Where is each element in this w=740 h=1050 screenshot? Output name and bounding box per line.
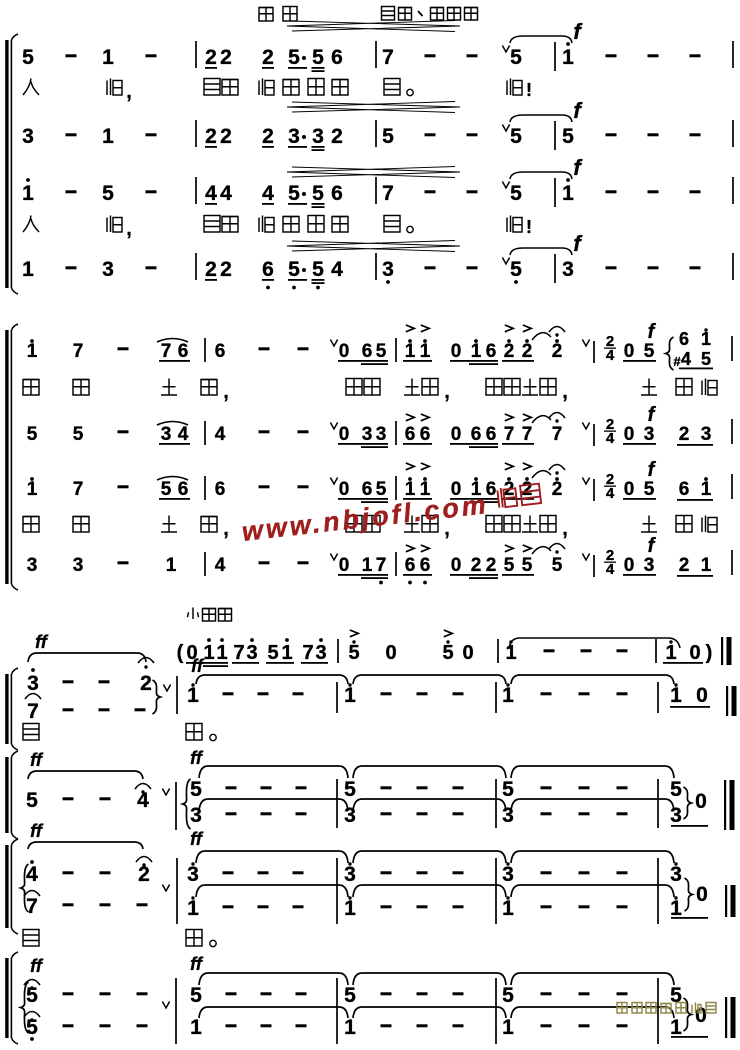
svg-text:): ) [706,642,713,664]
svg-text:1: 1 [670,684,682,707]
svg-text:3: 3 [288,125,300,148]
svg-text:1: 1 [22,258,34,281]
svg-text:2: 2 [140,672,152,695]
svg-text:1: 1 [420,341,431,362]
svg-text:7: 7 [73,479,84,500]
svg-text:5: 5 [510,182,522,205]
svg-text:4: 4 [606,347,615,364]
svg-text:2: 2 [220,258,232,281]
svg-text:6: 6 [486,424,497,445]
svg-text:1: 1 [216,642,227,664]
svg-text:4: 4 [26,863,38,886]
svg-text:2: 2 [205,258,217,281]
svg-text:1: 1 [505,642,516,664]
svg-text:0: 0 [624,424,635,445]
svg-text:0: 0 [624,555,635,576]
svg-text:3: 3 [376,424,387,445]
svg-text:4: 4 [178,424,189,445]
svg-text:4: 4 [205,182,217,205]
svg-text:5: 5 [26,789,38,812]
svg-text:1: 1 [502,1016,514,1039]
svg-text:6: 6 [331,182,343,205]
svg-text:6: 6 [215,341,226,362]
svg-text:6: 6 [362,479,373,500]
svg-text:1: 1 [344,684,356,707]
svg-text:5: 5 [701,349,711,369]
svg-text:5: 5 [442,642,453,664]
svg-text:4: 4 [215,424,226,445]
svg-text:3: 3 [22,125,34,148]
svg-text:7: 7 [522,424,533,445]
svg-text:5: 5 [344,984,356,1007]
svg-text:,: , [126,218,132,240]
svg-text:3: 3 [382,258,394,281]
svg-text:6: 6 [471,424,482,445]
svg-text:1: 1 [102,125,114,148]
svg-text:4: 4 [606,485,615,502]
svg-text:5: 5 [312,182,324,205]
svg-text:0: 0 [451,341,462,362]
svg-text:5: 5 [27,424,38,445]
svg-text:2: 2 [486,555,497,576]
svg-text:1: 1 [102,46,114,69]
svg-text:6: 6 [215,479,226,500]
svg-text:,: , [126,81,132,103]
svg-text:3: 3 [27,555,38,576]
svg-text:3: 3 [562,258,574,281]
svg-text:0: 0 [689,642,700,664]
svg-text:0: 0 [385,642,396,664]
svg-text:6: 6 [420,424,431,445]
svg-text:5: 5 [22,46,34,69]
svg-text:6: 6 [679,329,689,349]
svg-text:,: , [562,381,568,403]
svg-text:3: 3 [246,642,257,664]
svg-text:5: 5 [312,258,324,281]
svg-text:!: ! [526,80,532,100]
svg-text:3: 3 [362,424,373,445]
svg-text:5: 5 [73,424,84,445]
svg-text:3: 3 [73,555,84,576]
svg-text:0: 0 [696,883,708,906]
svg-text:6: 6 [262,258,274,281]
svg-text:4: 4 [215,555,226,576]
svg-text:1: 1 [502,897,514,920]
svg-text:1: 1 [187,897,199,920]
svg-text:5: 5 [502,984,514,1007]
svg-text:1: 1 [665,642,676,664]
svg-text:6: 6 [679,479,690,500]
svg-text:5: 5 [288,46,300,69]
svg-text:2: 2 [220,125,232,148]
svg-text:5: 5 [502,778,514,801]
svg-text:7: 7 [27,700,39,723]
svg-text:1: 1 [701,479,712,500]
svg-text:2: 2 [504,341,515,362]
svg-text:ff: ff [190,954,204,974]
svg-text:2: 2 [679,424,690,445]
svg-text:ff: ff [30,750,44,770]
svg-text:5: 5 [562,125,574,148]
svg-text:ff: ff [191,656,205,676]
svg-text:1: 1 [166,555,177,576]
svg-text:5: 5 [288,258,300,281]
svg-text:1: 1 [281,642,292,664]
svg-text:5: 5 [348,642,359,664]
svg-text:4: 4 [331,258,343,281]
svg-text:0: 0 [339,555,350,576]
svg-text:2: 2 [552,341,563,362]
svg-text:5: 5 [552,555,563,576]
svg-text:7: 7 [376,555,387,576]
svg-text:5: 5 [510,125,522,148]
svg-text:0: 0 [339,341,350,362]
svg-text:0: 0 [624,341,635,362]
svg-text:4: 4 [606,561,615,578]
svg-text:3: 3 [701,424,712,445]
svg-text:ff: ff [35,632,49,652]
svg-text:ff: ff [30,956,44,976]
svg-text:7: 7 [382,46,394,69]
svg-text:,: , [444,381,450,403]
svg-text:1: 1 [27,341,38,362]
svg-text:1: 1 [203,642,214,664]
svg-text:5: 5 [267,642,278,664]
svg-text:5: 5 [161,479,172,500]
svg-text:5: 5 [510,46,522,69]
svg-text:2: 2 [262,125,274,148]
svg-text:3: 3 [102,258,114,281]
svg-text:3: 3 [315,642,326,664]
svg-text:7: 7 [302,642,313,664]
svg-text:ff: ff [190,748,204,768]
svg-text:1: 1 [344,1016,356,1039]
svg-text:6: 6 [331,46,343,69]
svg-text:3: 3 [187,863,199,886]
svg-text:5: 5 [644,479,655,500]
svg-text:6: 6 [362,341,373,362]
svg-text:3: 3 [670,804,682,827]
svg-text:ff: ff [30,821,44,841]
svg-text:5: 5 [522,555,533,576]
svg-text:4: 4 [606,430,615,447]
svg-text:1: 1 [701,329,711,349]
svg-text:,: , [223,518,229,540]
svg-text:7: 7 [504,424,515,445]
svg-text:0: 0 [695,790,707,813]
svg-text:3: 3 [644,424,655,445]
svg-text:6: 6 [420,555,431,576]
svg-text:7: 7 [233,642,244,664]
svg-text:7: 7 [26,895,38,918]
svg-text:2: 2 [262,46,274,69]
svg-text:2: 2 [552,479,563,500]
svg-text:1: 1 [562,46,574,69]
svg-text:5: 5 [670,778,682,801]
svg-text:3: 3 [502,863,514,886]
svg-text:5: 5 [312,46,324,69]
svg-text:7: 7 [73,341,84,362]
svg-text:4: 4 [681,349,691,369]
svg-text:2: 2 [205,125,217,148]
svg-text:0: 0 [451,424,462,445]
svg-text:1: 1 [344,897,356,920]
svg-text:5: 5 [376,341,387,362]
svg-text:1: 1 [22,182,34,205]
svg-text:3: 3 [644,555,655,576]
svg-text:6: 6 [178,479,189,500]
svg-text:,: , [562,518,568,540]
svg-text:5: 5 [288,182,300,205]
svg-text:3: 3 [312,125,324,148]
svg-text:5: 5 [644,341,655,362]
svg-text:1: 1 [471,341,482,362]
svg-text:4: 4 [220,182,232,205]
svg-text:1: 1 [562,182,574,205]
svg-text:7: 7 [382,182,394,205]
svg-text:3: 3 [344,863,356,886]
svg-text:5: 5 [510,258,522,281]
svg-text:1: 1 [670,1016,682,1039]
svg-text:1: 1 [701,555,712,576]
svg-text:3: 3 [27,672,39,695]
svg-text:1: 1 [190,1016,202,1039]
svg-text:0: 0 [624,479,635,500]
svg-text:0: 0 [696,684,708,707]
svg-text:2: 2 [331,125,343,148]
svg-text:5: 5 [382,125,394,148]
svg-text:0: 0 [339,424,350,445]
svg-text:5: 5 [376,479,387,500]
svg-text:2: 2 [205,46,217,69]
svg-text:2: 2 [522,341,533,362]
svg-text:3: 3 [161,424,172,445]
svg-text:,: , [223,381,229,403]
svg-text:6: 6 [178,341,189,362]
svg-text:7: 7 [552,424,563,445]
svg-text:(: ( [177,642,184,664]
svg-text:5: 5 [102,182,114,205]
svg-text:0: 0 [339,479,350,500]
svg-text:1: 1 [502,684,514,707]
svg-text:2: 2 [220,46,232,69]
svg-text:1: 1 [187,684,199,707]
svg-text:2: 2 [471,555,482,576]
svg-text:3: 3 [670,863,682,886]
svg-text:5: 5 [504,555,515,576]
svg-text:1: 1 [362,555,373,576]
svg-text:1: 1 [27,479,38,500]
svg-text:4: 4 [262,182,274,205]
svg-text:6: 6 [486,341,497,362]
svg-text:5: 5 [344,778,356,801]
svg-text:ff: ff [190,829,204,849]
svg-text:2: 2 [679,555,690,576]
svg-text:!: ! [526,217,532,237]
svg-text:1: 1 [670,897,682,920]
svg-text:6: 6 [405,424,416,445]
svg-text:0: 0 [451,555,462,576]
svg-text:5: 5 [190,778,202,801]
svg-text:5: 5 [190,984,202,1007]
svg-text:0: 0 [462,642,473,664]
svg-text:6: 6 [405,555,416,576]
svg-text:1: 1 [405,341,416,362]
svg-text:7: 7 [161,341,172,362]
